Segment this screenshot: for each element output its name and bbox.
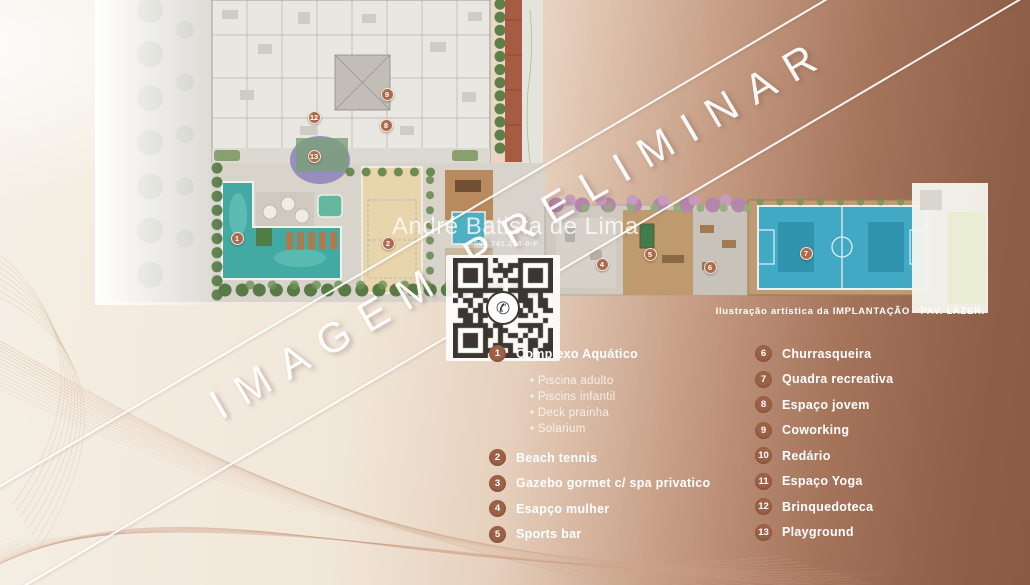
legend-label: Complexo Aquático bbox=[516, 347, 638, 361]
legend-label: Gazebo gormet c/ spa privatico bbox=[516, 476, 710, 490]
whatsapp-phone-icon: ✆ bbox=[486, 291, 520, 325]
legend-left-column: 1 Complexo Aquático • Piscina adulto • P… bbox=[489, 345, 710, 551]
legend-num-badge: 4 bbox=[489, 500, 506, 517]
plan-marker-12: 12 bbox=[308, 111, 321, 124]
legend-sub-item: • Deck prainha bbox=[530, 405, 710, 421]
legend-label: Beach tennis bbox=[516, 451, 597, 465]
legend-label: Espaço jovem bbox=[782, 398, 870, 412]
legend-num-badge: 8 bbox=[755, 396, 772, 413]
legend-label: Espaço Yoga bbox=[782, 474, 863, 488]
plan-marker-9: 9 bbox=[381, 88, 394, 101]
legend-item-5: 5 Sports bar bbox=[489, 526, 710, 543]
legend-label: Playground bbox=[782, 525, 854, 539]
watermark-person-name: André Batista de Lima bbox=[392, 213, 639, 241]
legend-item-12: 12 Brinquedoteca bbox=[755, 498, 893, 515]
plan-marker-4: 4 bbox=[596, 258, 609, 271]
legend-num-badge: 6 bbox=[755, 345, 772, 362]
legend-item-8: 8 Espaço jovem bbox=[755, 396, 893, 413]
marketing-page: 1 2 13 12 9 8 4 5 6 7 IMAGEM PRELIMINAR … bbox=[0, 0, 1030, 585]
plan-marker-1: 1 bbox=[231, 232, 244, 245]
legend-label: Sports bar bbox=[516, 527, 582, 541]
watermark-person-id: 065.741.268-0-F bbox=[474, 239, 538, 248]
caption-implantacao: Ilustração artística da IMPLANTAÇÃO - PA… bbox=[716, 306, 985, 317]
legend-num-badge: 9 bbox=[755, 422, 772, 439]
legend-num-badge: 1 bbox=[489, 345, 506, 362]
legend-item-13: 13 Playground bbox=[755, 524, 893, 541]
plan-marker-5: 5 bbox=[644, 248, 657, 261]
plan-marker-8: 8 bbox=[380, 119, 393, 132]
legend-right-column: 6 Churrasqueira 7 Quadra recreativa 8 Es… bbox=[755, 345, 893, 549]
leisure-strip-right bbox=[545, 183, 988, 313]
legend-num-badge: 2 bbox=[489, 449, 506, 466]
legend-label: Coworking bbox=[782, 423, 849, 437]
legend-num-badge: 12 bbox=[755, 498, 772, 515]
plan-marker-6: 6 bbox=[704, 261, 717, 274]
legend-item-7: 7 Quadra recreativa bbox=[755, 371, 893, 388]
legend-sub-item: • Solarium bbox=[530, 421, 710, 437]
legend-num-badge: 3 bbox=[489, 475, 506, 492]
legend-sub-item: • Piscina adulto bbox=[530, 373, 710, 389]
legend-item-9: 9 Coworking bbox=[755, 422, 893, 439]
legend-item-6: 6 Churrasqueira bbox=[755, 345, 893, 362]
legend-label: Redário bbox=[782, 449, 831, 463]
building-right-edge bbox=[500, 0, 543, 186]
legend-label: Brinquedoteca bbox=[782, 500, 873, 514]
legend-label: Quadra recreativa bbox=[782, 372, 893, 386]
legend-item-1: 1 Complexo Aquático bbox=[489, 345, 710, 362]
legend-item-4: 4 Esapço mulher bbox=[489, 500, 710, 517]
legend-item-2: 2 Beach tennis bbox=[489, 449, 710, 466]
legend-label: Esapço mulher bbox=[516, 502, 610, 516]
plan-marker-7: 7 bbox=[800, 247, 813, 260]
legend-item-3: 3 Gazebo gormet c/ spa privatico bbox=[489, 475, 710, 492]
legend-item-10: 10 Redário bbox=[755, 447, 893, 464]
legend-num-badge: 7 bbox=[755, 371, 772, 388]
legend-sublist: • Piscina adulto • Piscins infantil • De… bbox=[530, 373, 710, 437]
legend-num-badge: 13 bbox=[755, 524, 772, 541]
building-floorplan bbox=[212, 0, 490, 163]
legend-label: Churrasqueira bbox=[782, 347, 871, 361]
legend-num-badge: 10 bbox=[755, 447, 772, 464]
legend-num-badge: 5 bbox=[489, 526, 506, 543]
legend-item-11: 11 Espaço Yoga bbox=[755, 473, 893, 490]
plan-left-fade bbox=[95, 0, 220, 305]
legend-sub-item: • Piscins infantil bbox=[530, 389, 710, 405]
plan-marker-13: 13 bbox=[308, 150, 321, 163]
legend-num-badge: 11 bbox=[755, 473, 772, 490]
